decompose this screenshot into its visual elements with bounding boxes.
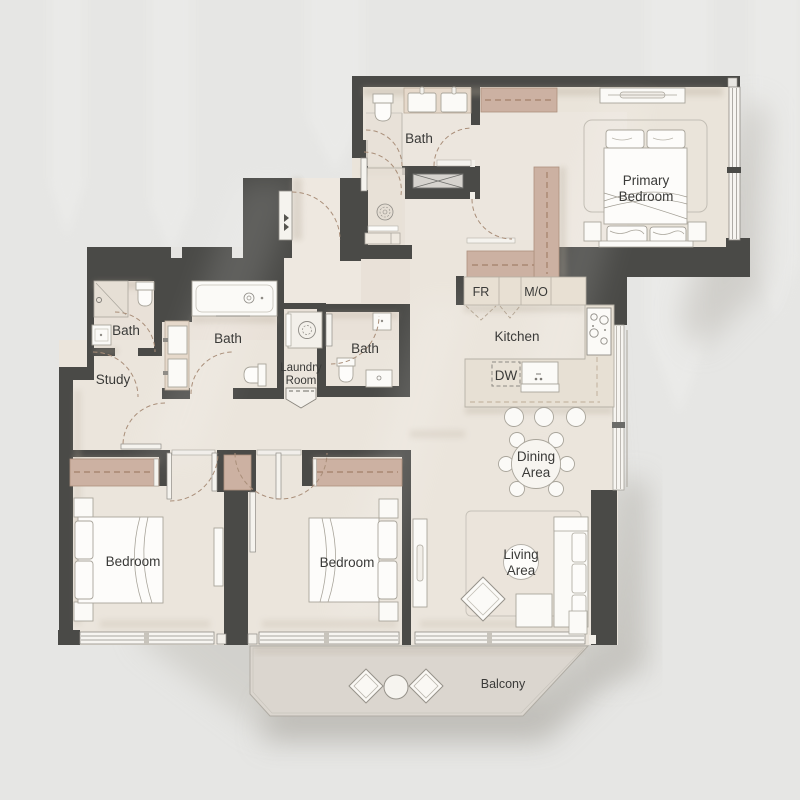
svg-text:Bedroom: Bedroom	[320, 555, 375, 570]
svg-text:Bedroom: Bedroom	[106, 554, 161, 569]
svg-text:Primary: Primary	[623, 173, 670, 188]
svg-text:Area: Area	[507, 563, 536, 578]
svg-text:Balcony: Balcony	[481, 677, 526, 691]
svg-text:Study: Study	[96, 372, 131, 387]
svg-text:Area: Area	[522, 465, 551, 480]
svg-text:Kitchen: Kitchen	[494, 329, 539, 344]
svg-text:Bath: Bath	[351, 341, 379, 356]
svg-text:Laundry: Laundry	[280, 362, 322, 374]
svg-text:Bath: Bath	[214, 331, 242, 346]
svg-text:Dining: Dining	[517, 449, 555, 464]
svg-text:DW: DW	[495, 368, 518, 383]
svg-text:Bath: Bath	[112, 323, 140, 338]
svg-text:Bedroom: Bedroom	[619, 189, 674, 204]
svg-text:M/O: M/O	[524, 285, 548, 299]
svg-text:FR: FR	[473, 285, 490, 299]
svg-text:Living: Living	[503, 547, 538, 562]
svg-text:Room: Room	[286, 375, 317, 387]
svg-text:Bath: Bath	[405, 131, 433, 146]
